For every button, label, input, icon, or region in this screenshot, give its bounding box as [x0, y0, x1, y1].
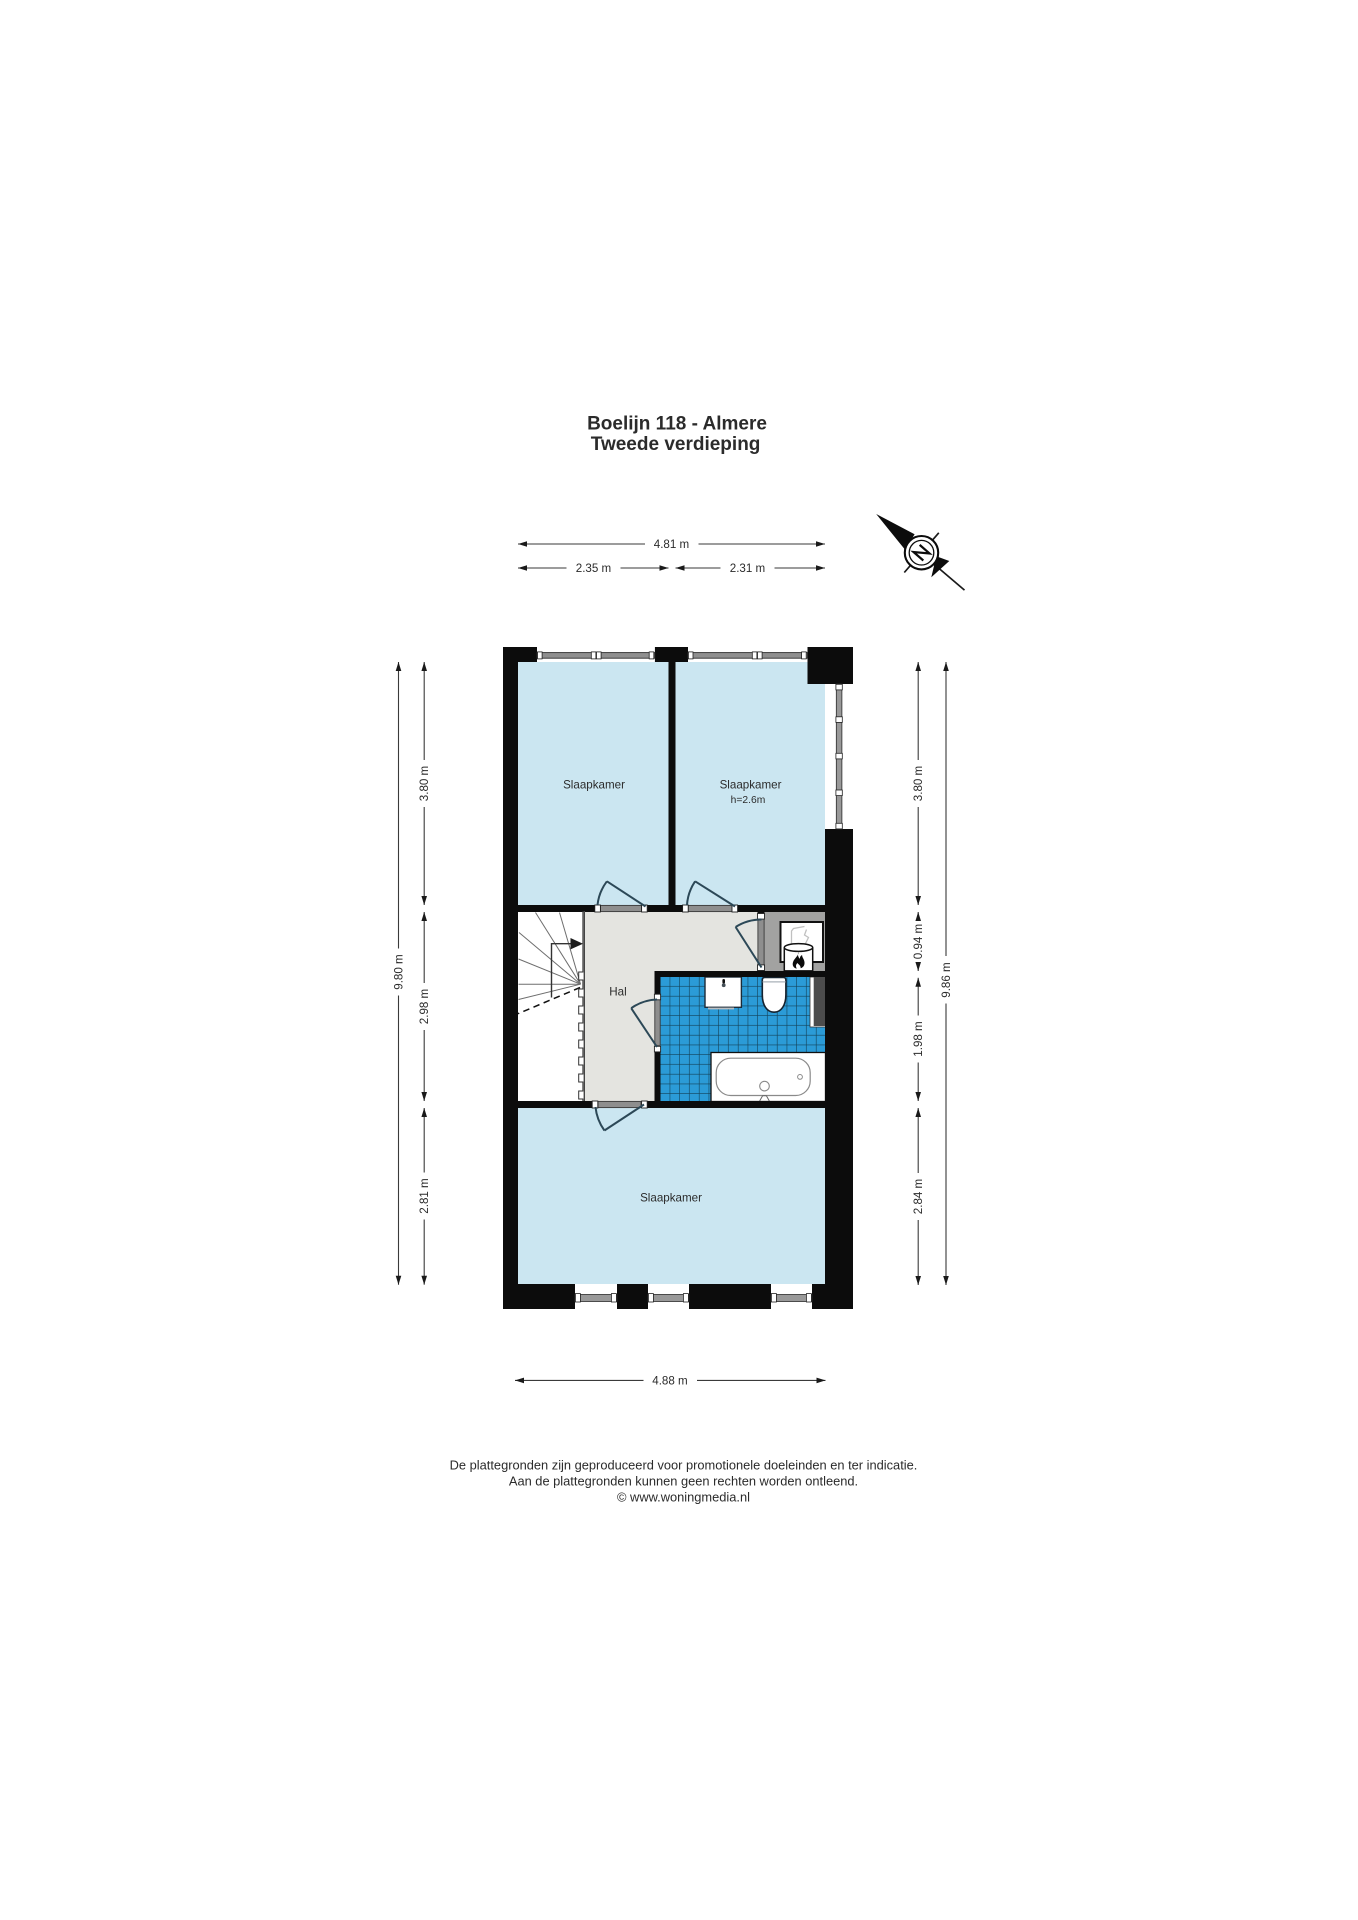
svg-text:Tweede verdieping: Tweede verdieping — [591, 434, 761, 455]
svg-text:2.31 m: 2.31 m — [730, 562, 765, 575]
svg-text:2.98 m: 2.98 m — [418, 989, 431, 1024]
svg-text:Aan de plattegronden kunnen ge: Aan de plattegronden kunnen geen rechten… — [509, 1474, 858, 1489]
svg-text:0.94 m: 0.94 m — [912, 924, 925, 959]
svg-text:Slaapkamer: Slaapkamer — [720, 779, 782, 792]
svg-text:Boelijn 118 - Almere: Boelijn 118 - Almere — [587, 414, 767, 435]
svg-text:Slaapkamer: Slaapkamer — [563, 779, 625, 792]
svg-text:4.88 m: 4.88 m — [652, 1375, 687, 1388]
svg-text:De plattegronden zijn geproduc: De plattegronden zijn geproduceerd voor … — [450, 1458, 918, 1473]
svg-text:2.84 m: 2.84 m — [912, 1179, 925, 1214]
svg-text:2.81 m: 2.81 m — [418, 1178, 431, 1213]
svg-text:3.80 m: 3.80 m — [912, 766, 925, 801]
svg-text:h=2.6m: h=2.6m — [731, 795, 766, 806]
svg-text:Hal: Hal — [609, 986, 626, 999]
svg-text:2.35 m: 2.35 m — [576, 562, 611, 575]
svg-text:3.80 m: 3.80 m — [418, 766, 431, 801]
svg-text:4.81 m: 4.81 m — [654, 538, 689, 551]
svg-text:9.80 m: 9.80 m — [393, 954, 406, 989]
svg-text:9.86 m: 9.86 m — [940, 962, 953, 997]
svg-text:Slaapkamer: Slaapkamer — [640, 1192, 702, 1205]
svg-text:1.98 m: 1.98 m — [912, 1021, 925, 1056]
svg-text:© www.woningmedia.nl: © www.woningmedia.nl — [617, 1490, 750, 1505]
